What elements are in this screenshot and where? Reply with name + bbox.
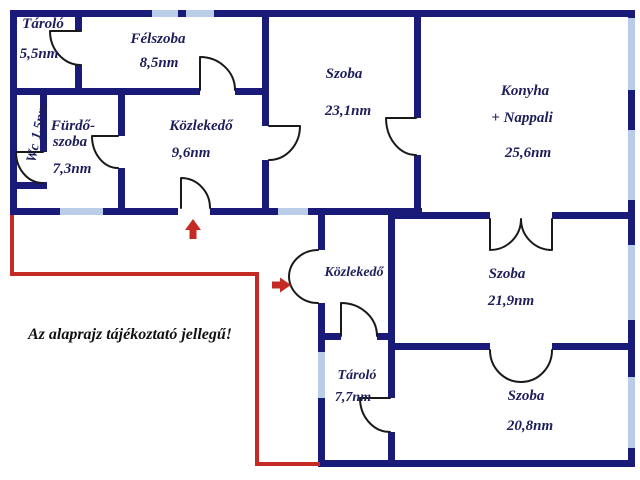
room-name-tarolo1: Tároló — [22, 16, 64, 32]
entrance-arrow-up-icon — [185, 219, 201, 239]
wall-outer-bottom — [318, 460, 635, 467]
entrance-arrow-right-icon — [272, 278, 291, 293]
window-right-1 — [628, 18, 635, 90]
room-name-kozlekedo2: Közlekedő — [323, 265, 384, 280]
wall-lower-left-a — [318, 215, 325, 250]
room-name-szoba3: Szoba — [508, 388, 545, 404]
floor-plan-canvas: Tároló 5,5nm Félszoba 8,5nm Wc1,5nm Fürd… — [0, 0, 640, 480]
window-top-1 — [152, 10, 178, 17]
room-area-szoba1: 23,1nm — [324, 103, 371, 119]
wall-furdo-a — [118, 95, 125, 136]
door-kozlekedo2-tarolo2 — [341, 303, 377, 336]
room-area-furdoszoba: 7,3nm — [53, 161, 92, 177]
room-labels: Tároló 5,5nm Félszoba 8,5nm Wc1,5nm Fürd… — [20, 16, 554, 434]
wall-v4-a — [262, 17, 269, 126]
window-mid-2 — [278, 208, 308, 215]
room-name-wc: Wc — [24, 142, 43, 164]
room-area-felszoba: 8,5nm — [140, 55, 179, 71]
wall-h1-left — [10, 88, 200, 95]
room-name-furdoszoba-line1: Fürdő- — [50, 118, 95, 134]
wall-h2-right — [552, 212, 635, 219]
wall-tarolo1-b — [75, 65, 82, 88]
door-kozlekedo1-szoba1 — [269, 126, 300, 160]
door-felszoba — [200, 57, 235, 90]
wall-lower-left-b — [318, 303, 325, 352]
room-name-furdoszoba-line2: szoba — [52, 134, 88, 150]
window-right-4 — [628, 377, 635, 448]
room-name-tarolo2: Tároló — [338, 368, 377, 383]
window-lower-left — [318, 352, 325, 398]
room-name-felszoba: Félszoba — [129, 31, 186, 47]
wall-outer-top — [10, 10, 635, 17]
room-name-szoba2: Szoba — [489, 266, 526, 282]
room-name-kozlekedo1: Közlekedő — [168, 118, 234, 134]
wall-v6-a — [388, 212, 395, 398]
door-szoba1-konyha — [386, 118, 416, 155]
door-entrance-kozlekedo2-double — [289, 250, 318, 303]
wall-h3-left — [318, 333, 341, 340]
disclaimer-text: Az alaprajz tájékoztató jellegű! — [27, 326, 232, 343]
room-name-konyha-line2: + Nappali — [491, 110, 553, 126]
wall-furdo-b — [118, 168, 125, 215]
room-area-tarolo1: 5,5nm — [20, 46, 59, 62]
door-szoba2-szoba3-double — [490, 350, 552, 382]
room-area-szoba3: 20,8nm — [506, 418, 553, 434]
door-konyha-szoba2-double — [490, 219, 552, 250]
room-area-kozlekedo1: 9,6nm — [172, 145, 211, 161]
wall-h2-left — [388, 212, 490, 219]
room-area-tarolo2: 7,7nm — [335, 390, 371, 405]
room-label-wc: Wc1,5nm — [24, 102, 51, 164]
wall-v6-b — [388, 432, 395, 467]
room-name-konyha: Konyha — [500, 83, 550, 99]
wall-tarolo1-a — [75, 17, 82, 31]
room-area-szoba2: 21,9nm — [487, 293, 534, 309]
wall-h4-left — [388, 343, 490, 350]
door-entrance-kozlekedo1 — [181, 178, 210, 208]
window-right-3 — [628, 245, 635, 320]
room-area-wc: 1,5nm — [29, 102, 51, 141]
window-top-2 — [186, 10, 214, 17]
room-name-szoba1: Szoba — [326, 66, 363, 82]
wall-v5-b — [414, 155, 421, 212]
door-furdoszoba — [92, 136, 118, 168]
room-area-konyha: 25,6nm — [504, 145, 551, 161]
floor-plan: Tároló 5,5nm Félszoba 8,5nm Wc1,5nm Fürd… — [0, 0, 640, 480]
wall-h4-right — [552, 343, 635, 350]
wall-lower-left-c — [318, 398, 325, 460]
window-mid-1 — [60, 208, 103, 215]
window-right-2 — [628, 130, 635, 200]
wall-v5-a — [414, 17, 421, 118]
wall-v4-b — [262, 160, 269, 208]
wall-h3-right — [377, 333, 395, 340]
